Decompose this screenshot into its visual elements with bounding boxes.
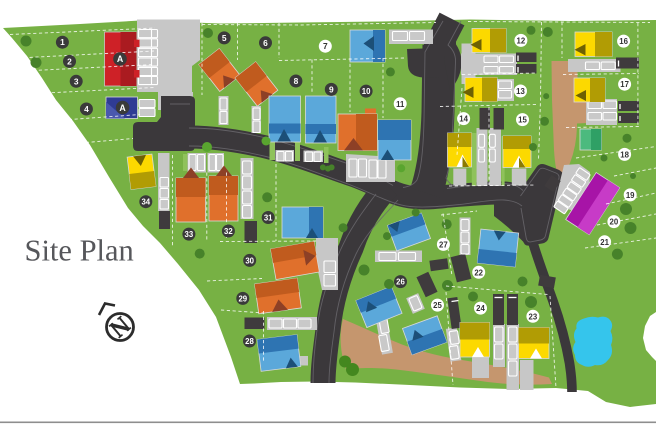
- svg-text:20: 20: [610, 218, 619, 227]
- svg-text:32: 32: [224, 227, 233, 236]
- svg-text:26: 26: [396, 278, 405, 287]
- svg-text:24: 24: [476, 304, 485, 313]
- svg-text:34: 34: [141, 198, 150, 207]
- svg-text:4: 4: [84, 104, 89, 114]
- svg-text:15: 15: [518, 116, 527, 125]
- svg-text:8: 8: [294, 76, 299, 86]
- svg-text:27: 27: [439, 240, 448, 249]
- svg-text:12: 12: [517, 36, 526, 45]
- svg-text:14: 14: [459, 115, 468, 124]
- svg-text:23: 23: [529, 312, 538, 321]
- svg-text:33: 33: [185, 230, 194, 239]
- svg-text:18: 18: [620, 150, 629, 159]
- svg-text:3: 3: [74, 76, 79, 86]
- svg-text:29: 29: [238, 294, 247, 303]
- svg-text:6: 6: [263, 38, 268, 48]
- svg-text:10: 10: [362, 87, 371, 96]
- svg-text:30: 30: [245, 256, 254, 265]
- svg-text:21: 21: [600, 238, 609, 247]
- svg-text:7: 7: [323, 41, 328, 51]
- svg-text:31: 31: [264, 214, 273, 223]
- svg-text:22: 22: [474, 268, 483, 277]
- svg-text:13: 13: [516, 87, 525, 96]
- svg-text:16: 16: [619, 37, 628, 46]
- svg-text:5: 5: [222, 33, 227, 43]
- svg-text:11: 11: [396, 100, 405, 109]
- svg-text:28: 28: [245, 337, 254, 346]
- svg-text:A: A: [119, 103, 126, 113]
- svg-text:19: 19: [626, 191, 635, 200]
- svg-text:2: 2: [67, 56, 72, 66]
- svg-text:1: 1: [60, 37, 65, 47]
- svg-text:25: 25: [433, 301, 442, 310]
- svg-text:Site Plan: Site Plan: [25, 234, 134, 268]
- svg-text:17: 17: [620, 80, 629, 89]
- svg-text:A: A: [117, 54, 124, 64]
- svg-text:9: 9: [329, 84, 334, 94]
